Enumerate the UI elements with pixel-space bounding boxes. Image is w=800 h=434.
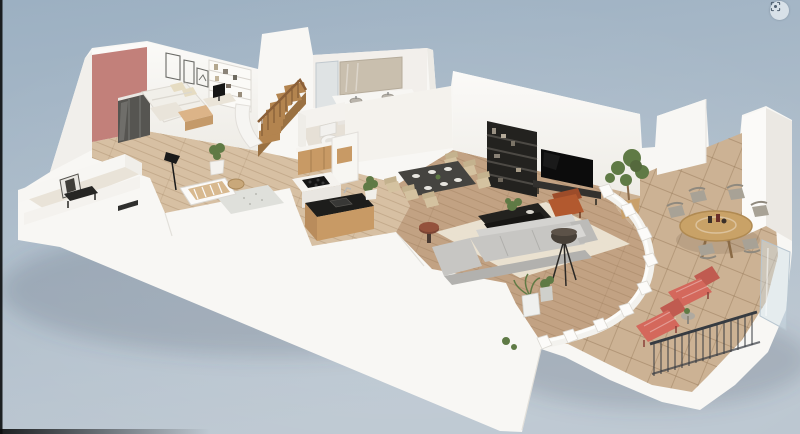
basket (228, 179, 244, 189)
bathroom-mirror (340, 57, 402, 95)
tall-cabinet (332, 132, 358, 186)
recenter-button[interactable] (770, 1, 789, 20)
floorplan-viewport (0, 0, 800, 434)
glass-balustrade (760, 240, 790, 330)
frame-bottom-edge (0, 429, 210, 434)
focus-target-icon (770, 1, 781, 12)
frame-left-edge (0, 0, 3, 434)
floorplan-3d-canvas[interactable] (0, 0, 800, 434)
media-shelf (487, 121, 537, 197)
